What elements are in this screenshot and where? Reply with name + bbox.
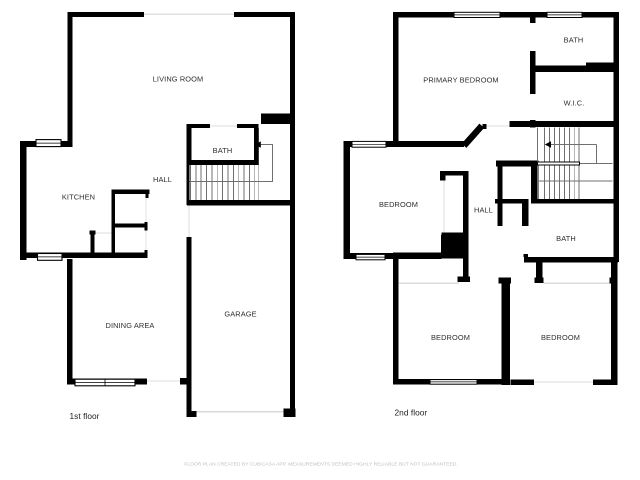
svg-text:DINING AREA: DINING AREA	[106, 321, 155, 330]
svg-text:GARAGE: GARAGE	[224, 309, 256, 318]
svg-text:W.I.C.: W.I.C.	[564, 98, 585, 107]
svg-text:BATH: BATH	[213, 146, 233, 155]
svg-text:PRIMARY BEDROOM: PRIMARY BEDROOM	[423, 75, 498, 84]
svg-text:HALL: HALL	[153, 175, 172, 184]
svg-text:BEDROOM: BEDROOM	[431, 333, 470, 342]
svg-text:BATH: BATH	[556, 234, 576, 243]
svg-text:BATH: BATH	[564, 35, 584, 44]
svg-text:1st floor: 1st floor	[70, 411, 100, 421]
svg-text:BEDROOM: BEDROOM	[379, 200, 418, 209]
svg-text:LIVING ROOM: LIVING ROOM	[153, 74, 204, 83]
svg-text:BEDROOM: BEDROOM	[541, 333, 580, 342]
svg-text:2nd floor: 2nd floor	[395, 408, 428, 418]
svg-text:FLOOR PLAN CREATED BY CUBICASA: FLOOR PLAN CREATED BY CUBICASA APP. MEAS…	[184, 461, 458, 467]
svg-text:HALL: HALL	[474, 206, 493, 215]
svg-text:KITCHEN: KITCHEN	[62, 192, 95, 201]
